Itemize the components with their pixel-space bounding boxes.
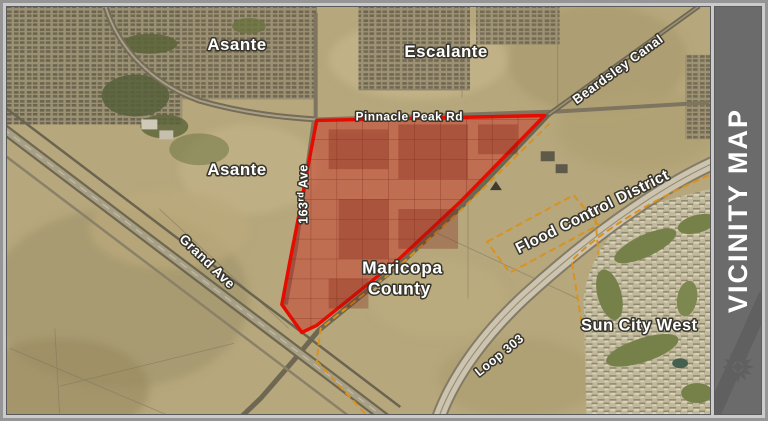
panel-title: VICINITY MAP [723, 108, 754, 313]
vicinity-map-panel: VICINITY MAP [714, 6, 762, 415]
pond [672, 358, 688, 368]
vicinity-map-figure: Asante Escalante Asante Pinnacle Peak Rd… [0, 0, 768, 421]
label-sun-city-west: Sun City West [581, 316, 698, 334]
vicinity-map: Asante Escalante Asante Pinnacle Peak Rd… [7, 7, 710, 414]
label-maricopa-county-line2: County [368, 279, 431, 299]
label-asante-west: Asante [207, 160, 266, 179]
label-escalante: Escalante [404, 42, 487, 61]
label-asante-north: Asante [207, 35, 266, 54]
label-pinnacle-peak-rd: Pinnacle Peak Rd [356, 109, 464, 123]
map-area: Asante Escalante Asante Pinnacle Peak Rd… [6, 6, 711, 415]
label-maricopa-county-line1: Maricopa [362, 258, 442, 278]
figure-inner: Asante Escalante Asante Pinnacle Peak Rd… [6, 6, 762, 415]
